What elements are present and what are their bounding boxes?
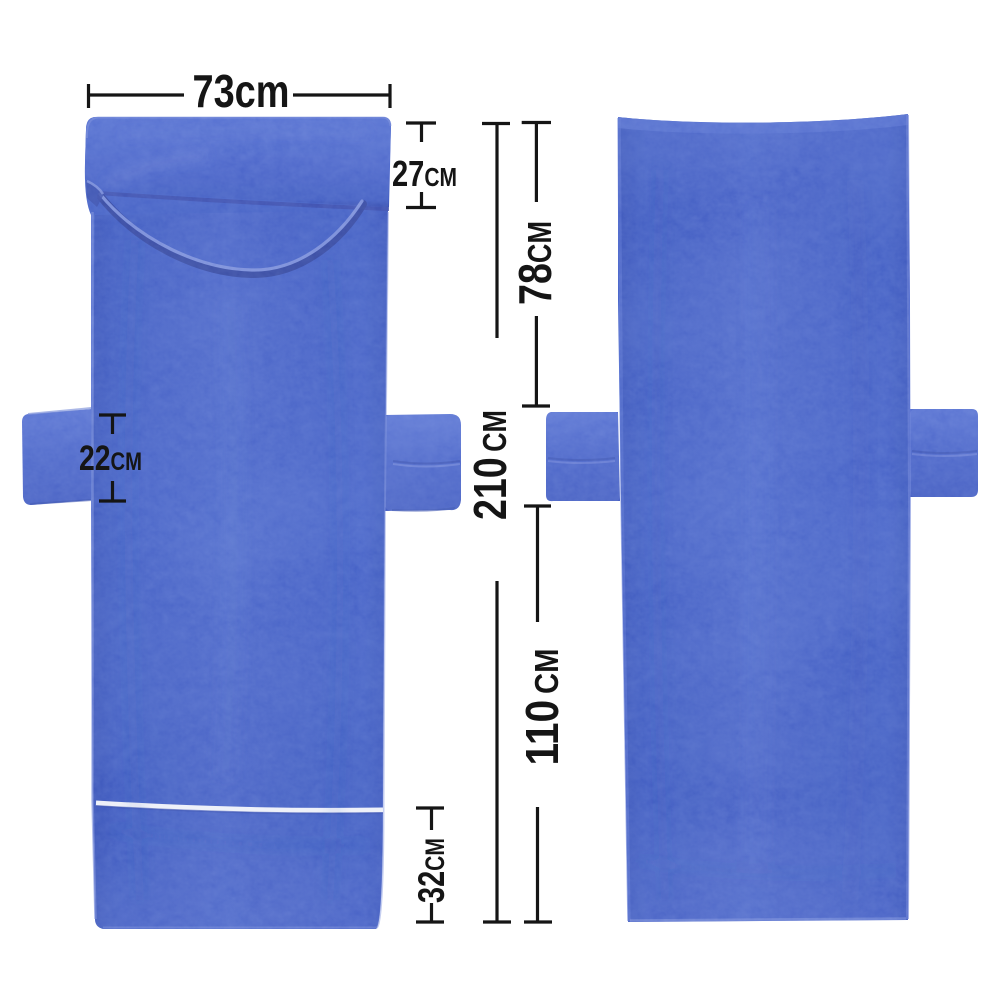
svg-text:73cm: 73cm (193, 65, 290, 117)
